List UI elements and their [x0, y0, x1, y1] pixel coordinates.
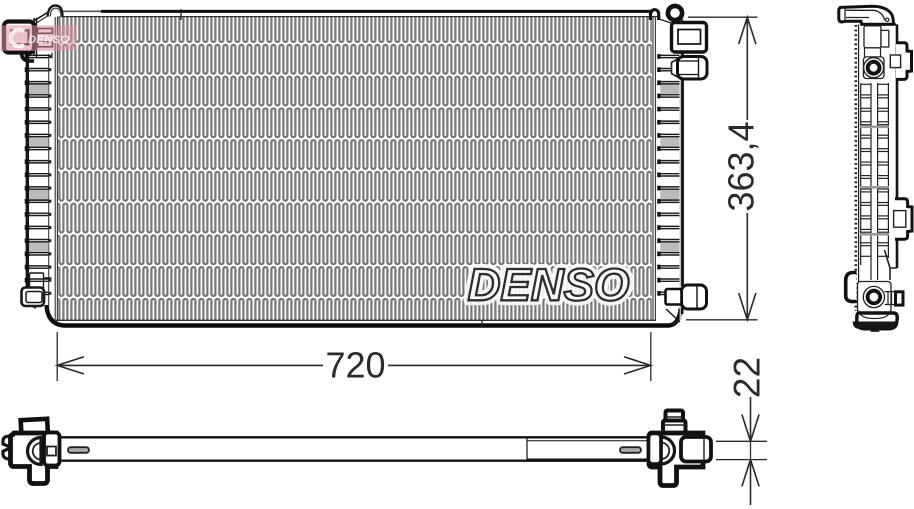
svg-text:DENSO: DENSO — [28, 34, 70, 46]
svg-text:22: 22 — [727, 357, 768, 398]
svg-text:363,4: 363,4 — [721, 121, 762, 211]
svg-text:720: 720 — [325, 345, 385, 386]
